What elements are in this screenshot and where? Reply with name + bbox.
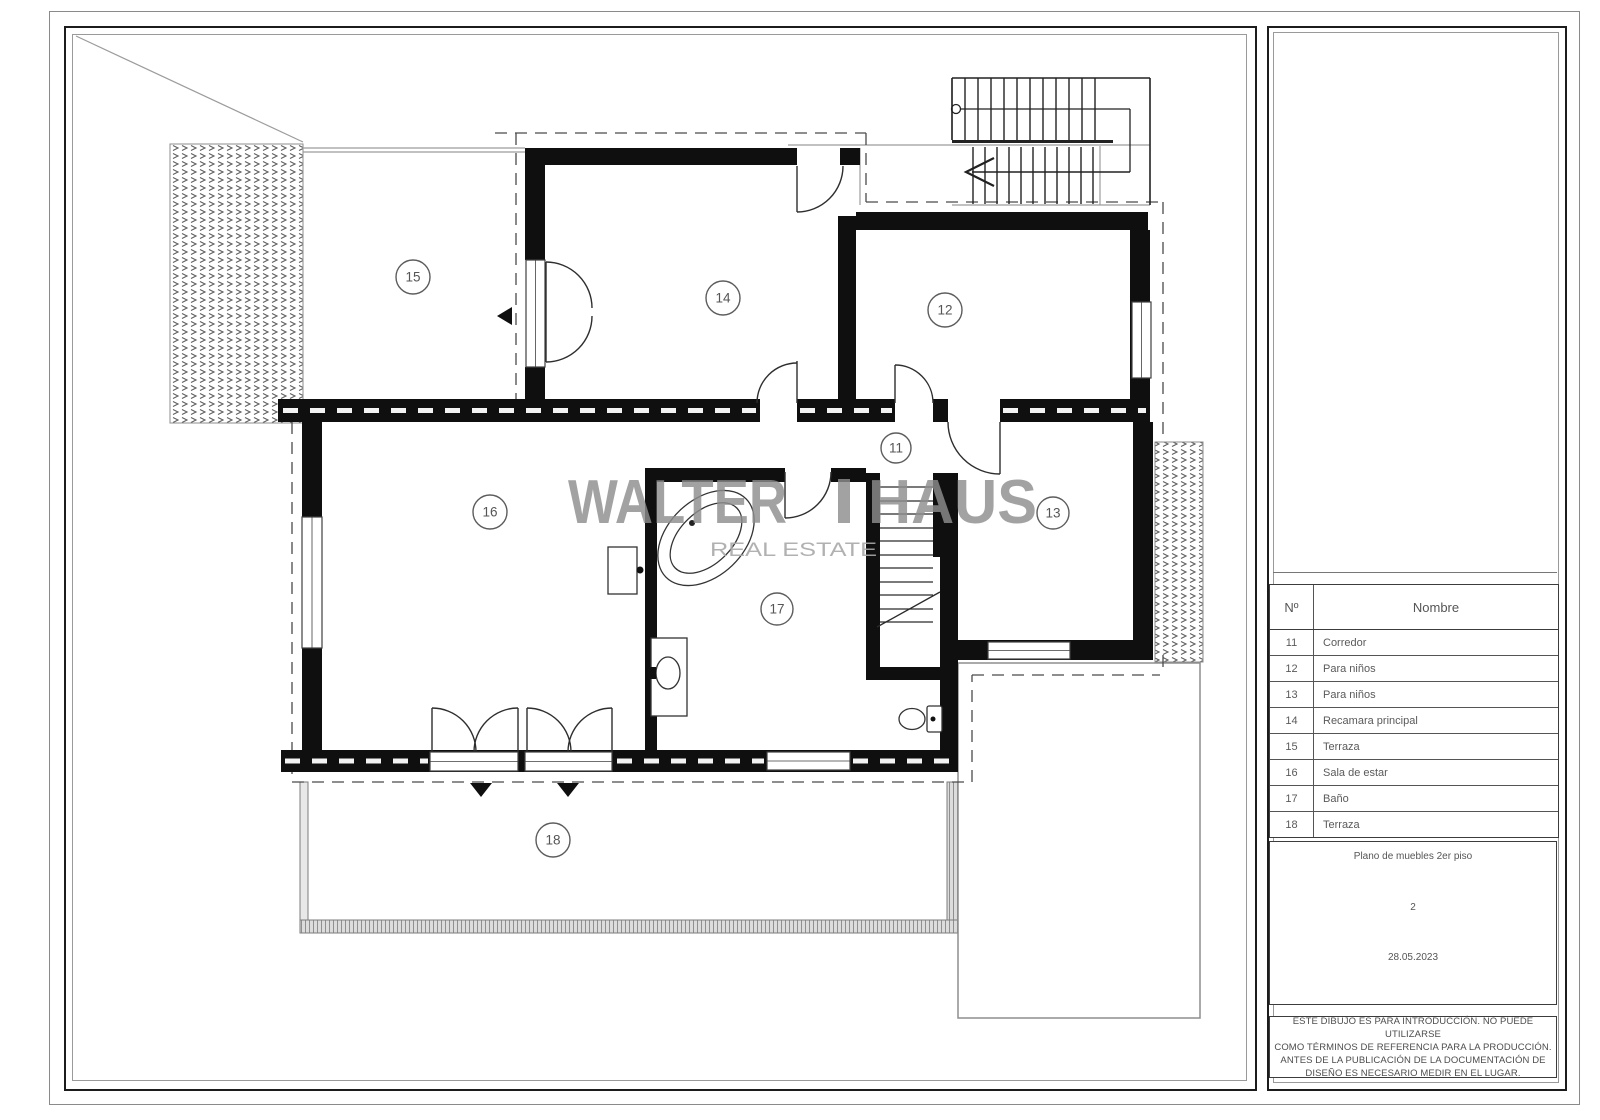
svg-text:15: 15 [405,270,420,285]
legend-header-name: Nombre [1314,585,1558,629]
legend-cell-no: 13 [1270,682,1314,707]
legend-cell-name: Para niños [1314,682,1558,707]
lower-terrace-outline [958,663,1200,1018]
legend-cell-no: 15 [1270,734,1314,759]
legend-header-no: Nº [1270,585,1314,629]
legend-cell-no: 16 [1270,760,1314,785]
legend-header-row: Nº Nombre [1270,585,1558,630]
legend-row-14: 14 Recamara principal [1270,708,1558,734]
svg-text:17: 17 [769,602,784,617]
legend-cell-no: 11 [1270,630,1314,655]
legend-row-15: 15 Terraza [1270,734,1558,760]
legend-table: Nº Nombre 11 Corredor 12 Para niños 13 P… [1269,584,1559,838]
legend-cell-no: 18 [1270,812,1314,837]
exterior-staircase [952,78,1151,205]
terrace-18-border [300,782,960,933]
watermark-divider [838,479,850,523]
disclaimer-note: ESTE DIBUJO ES PARA INTRODUCCIÓN. NO PUE… [1269,1016,1557,1078]
disclaimer-line: COMO TÉRMINOS DE REFERENCIA PARA LA PROD… [1270,1041,1556,1054]
legend-row-11: 11 Corredor [1270,630,1558,656]
legend-cell-name: Terraza [1314,734,1558,759]
legend-row-12: 12 Para niños [1270,656,1558,682]
room-label-18: 18 [536,823,570,857]
legend-row-16: 16 Sala de estar [1270,760,1558,786]
svg-text:16: 16 [482,505,497,520]
room-label-16: 16 [473,495,507,529]
drawing-title: Plano de muebles 2er piso [1270,851,1556,862]
svg-text:13: 13 [1045,506,1060,521]
toilet-wc [899,706,942,732]
room-label-12: 12 [928,293,962,327]
room-label-17: 17 [761,593,793,625]
room-label-13: 13 [1037,497,1069,529]
svg-text:12: 12 [937,303,952,318]
legend-row-17: 17 Baño [1270,786,1558,812]
legend-row-18: 18 Terraza [1270,812,1558,837]
drawing-date: 28.05.2023 [1270,952,1556,963]
svg-text:14: 14 [715,291,731,306]
watermark-word-right: HAUS [868,468,1037,537]
svg-text:18: 18 [545,833,560,848]
legend-cell-name: Para niños [1314,656,1558,681]
legend-cell-no: 14 [1270,708,1314,733]
door-swings [432,166,1000,752]
title-block: Plano de muebles 2er piso 2 28.05.2023 [1269,841,1557,1005]
watermark-subtitle: REAL ESTATE [710,540,877,561]
legend-cell-no: 12 [1270,656,1314,681]
room-label-14: 14 [706,281,740,315]
legend-cell-name: Baño [1314,786,1558,811]
disclaimer-line: DISEÑO ES NECESARIO MEDIR EN EL LUGAR. [1270,1067,1556,1080]
svg-text:11: 11 [889,441,903,456]
room-label-15: 15 [396,260,430,294]
room-label-11: 11 [881,433,911,463]
legend-cell-name: Terraza [1314,812,1558,837]
toilet-bathroom [648,638,687,716]
terrace-hatch-left [170,144,303,423]
legend-cell-name: Sala de estar [1314,760,1558,785]
disclaimer-line: ESTE DIBUJO ES PARA INTRODUCCIÓN. NO PUE… [1270,1015,1556,1041]
floor-plan-sheet: { "watermark": { "word_left": "WALTER", … [0,0,1600,1120]
terrace-hatch-right [1155,442,1203,662]
sink-cabinet [608,547,644,594]
legend-cell-name: Recamara principal [1314,708,1558,733]
disclaimer-line: ANTES DE LA PUBLICACIÓN DE LA DOCUMENTAC… [1270,1054,1556,1067]
legend-cell-name: Corredor [1314,630,1558,655]
legend-cell-no: 17 [1270,786,1314,811]
direction-markers [470,307,579,797]
sheet-number: 2 [1270,902,1556,913]
legend-row-13: 13 Para niños [1270,682,1558,708]
watermark-word-left: WALTER [568,468,787,537]
